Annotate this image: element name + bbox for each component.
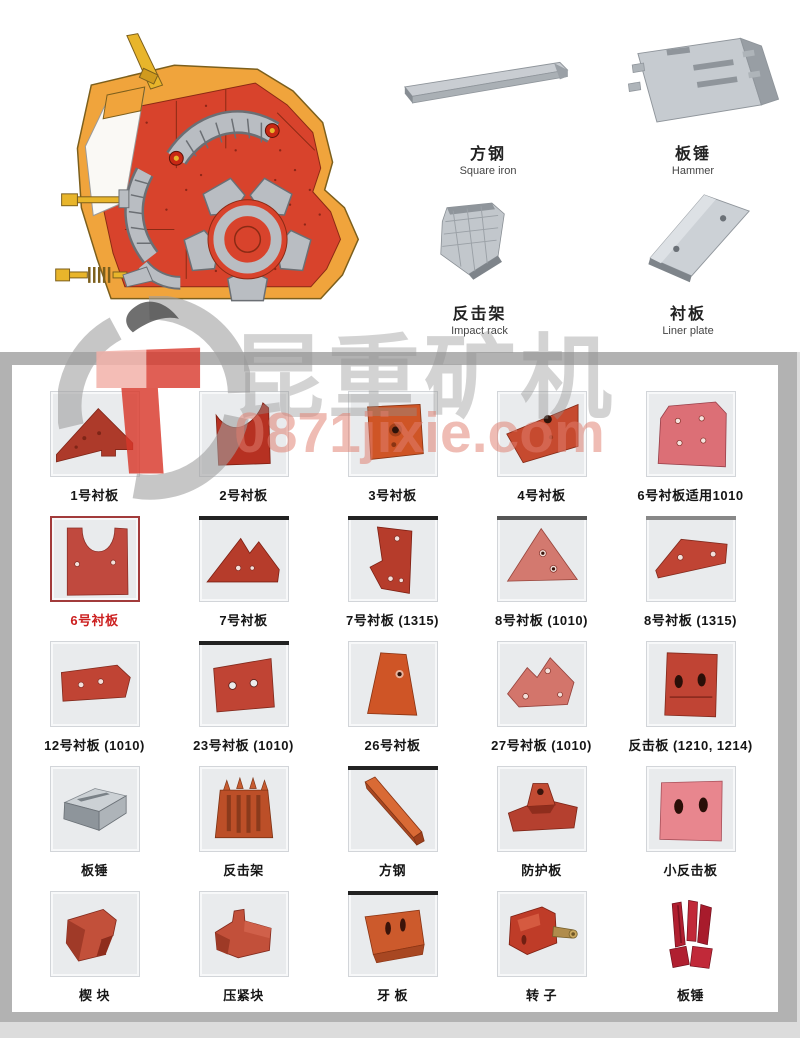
part-image [497,766,587,852]
photo-top-edge [348,516,438,520]
top-part-name-cn: 反击架 [402,300,557,324]
catalog-band: 1号衬板 2号衬板 3号衬板 4号衬板 6号衬板适用1010 6号衬板 7号衬板… [0,352,797,1022]
part-label: 12号衬板 (1010) [20,735,169,754]
part-label: 8号衬板 (1010) [467,610,616,629]
part-label: 板锤 [616,985,765,1004]
part-cell[interactable]: 6号衬板 [20,516,169,641]
part-cell[interactable]: 3号衬板 [318,391,467,516]
part-cell[interactable]: 7号衬板 (1315) [318,516,467,641]
part-label: 4号衬板 [467,485,616,504]
part-label: 反击架 [169,860,318,879]
top-part-square-iron: 方钢 Square iron [388,34,588,177]
top-part-image [598,28,788,138]
top-part-image [402,184,557,298]
impact-crusher-diagram [28,30,384,330]
photo-top-edge [348,891,438,895]
catalog-panel: 1号衬板 2号衬板 3号衬板 4号衬板 6号衬板适用1010 6号衬板 7号衬板… [12,365,778,1012]
part-cell[interactable]: 23号衬板 (1010) [169,641,318,766]
part-image [646,391,736,477]
top-part-name-cn: 方钢 [388,140,588,164]
part-cell[interactable]: 转 子 [467,891,616,1016]
part-image [348,516,438,602]
part-cell[interactable]: 板锤 [616,891,765,1016]
part-label: 1号衬板 [20,485,169,504]
part-image [50,391,140,477]
part-image [646,641,736,727]
part-image [199,641,289,727]
part-image [50,516,140,602]
part-label: 防护板 [467,860,616,879]
photo-top-edge [646,516,736,520]
part-label: 小反击板 [616,860,765,879]
part-image [497,516,587,602]
part-cell[interactable]: 6号衬板适用1010 [616,391,765,516]
part-cell[interactable]: 12号衬板 (1010) [20,641,169,766]
part-cell[interactable]: 26号衬板 [318,641,467,766]
part-cell[interactable]: 1号衬板 [20,391,169,516]
top-part-name-en: Liner plate [598,325,778,337]
part-cell[interactable]: 板锤 [20,766,169,891]
top-part-name-en: Impact rack [402,325,557,337]
part-image [199,391,289,477]
part-label: 8号衬板 (1315) [616,610,765,629]
part-cell[interactable]: 小反击板 [616,766,765,891]
part-cell[interactable]: 牙 板 [318,891,467,1016]
top-part-image [598,180,778,298]
photo-top-edge [199,641,289,645]
photo-top-edge [199,516,289,520]
part-image [50,891,140,977]
part-cell[interactable]: 反击架 [169,766,318,891]
part-label: 7号衬板 [169,610,318,629]
part-cell[interactable]: 楔 块 [20,891,169,1016]
part-image [199,766,289,852]
part-label: 6号衬板适用1010 [616,485,765,504]
part-cell[interactable]: 压紧块 [169,891,318,1016]
top-part-name-cn: 衬板 [598,300,778,324]
part-cell[interactable]: 反击板 (1210, 1214) [616,641,765,766]
top-part-name-cn: 板锤 [598,140,788,164]
photo-top-edge [348,766,438,770]
part-image [348,891,438,977]
part-cell[interactable]: 2号衬板 [169,391,318,516]
top-part-image [388,34,588,138]
part-label: 转 子 [467,985,616,1004]
part-cell[interactable]: 7号衬板 [169,516,318,641]
part-image [348,391,438,477]
top-part-name-en: Hammer [598,165,788,177]
part-label: 牙 板 [318,985,467,1004]
part-image [199,891,289,977]
part-label: 压紧块 [169,985,318,1004]
part-image [50,641,140,727]
band-bottom-strip [0,1022,800,1038]
part-cell[interactable]: 方钢 [318,766,467,891]
part-image [50,766,140,852]
part-label: 6号衬板 [20,610,169,629]
part-label: 27号衬板 (1010) [467,735,616,754]
part-image [348,641,438,727]
part-image [497,891,587,977]
part-label: 板锤 [20,860,169,879]
top-part-impact-rack: 反击架 Impact rack [402,184,557,337]
part-image [646,766,736,852]
catalog-page: 方钢 Square iron 板锤 Hammer 反击架 Impact rack… [0,0,800,1038]
part-label: 楔 块 [20,985,169,1004]
part-label: 3号衬板 [318,485,467,504]
part-label: 26号衬板 [318,735,467,754]
part-cell[interactable]: 防护板 [467,766,616,891]
part-label: 23号衬板 (1010) [169,735,318,754]
part-cell[interactable]: 8号衬板 (1010) [467,516,616,641]
parts-grid: 1号衬板 2号衬板 3号衬板 4号衬板 6号衬板适用1010 6号衬板 7号衬板… [20,391,765,1016]
top-part-liner-plate: 衬板 Liner plate [598,180,778,337]
part-label: 反击板 (1210, 1214) [616,735,765,754]
part-label: 方钢 [318,860,467,879]
part-cell[interactable]: 27号衬板 (1010) [467,641,616,766]
part-cell[interactable]: 8号衬板 (1315) [616,516,765,641]
part-image [348,766,438,852]
photo-top-edge [497,516,587,520]
part-image [646,516,736,602]
top-part-hammer: 板锤 Hammer [598,28,788,177]
part-image [646,891,736,977]
part-cell[interactable]: 4号衬板 [467,391,616,516]
part-label: 7号衬板 (1315) [318,610,467,629]
part-image [497,391,587,477]
part-image [497,641,587,727]
top-part-name-en: Square iron [388,165,588,177]
part-label: 2号衬板 [169,485,318,504]
part-image [199,516,289,602]
